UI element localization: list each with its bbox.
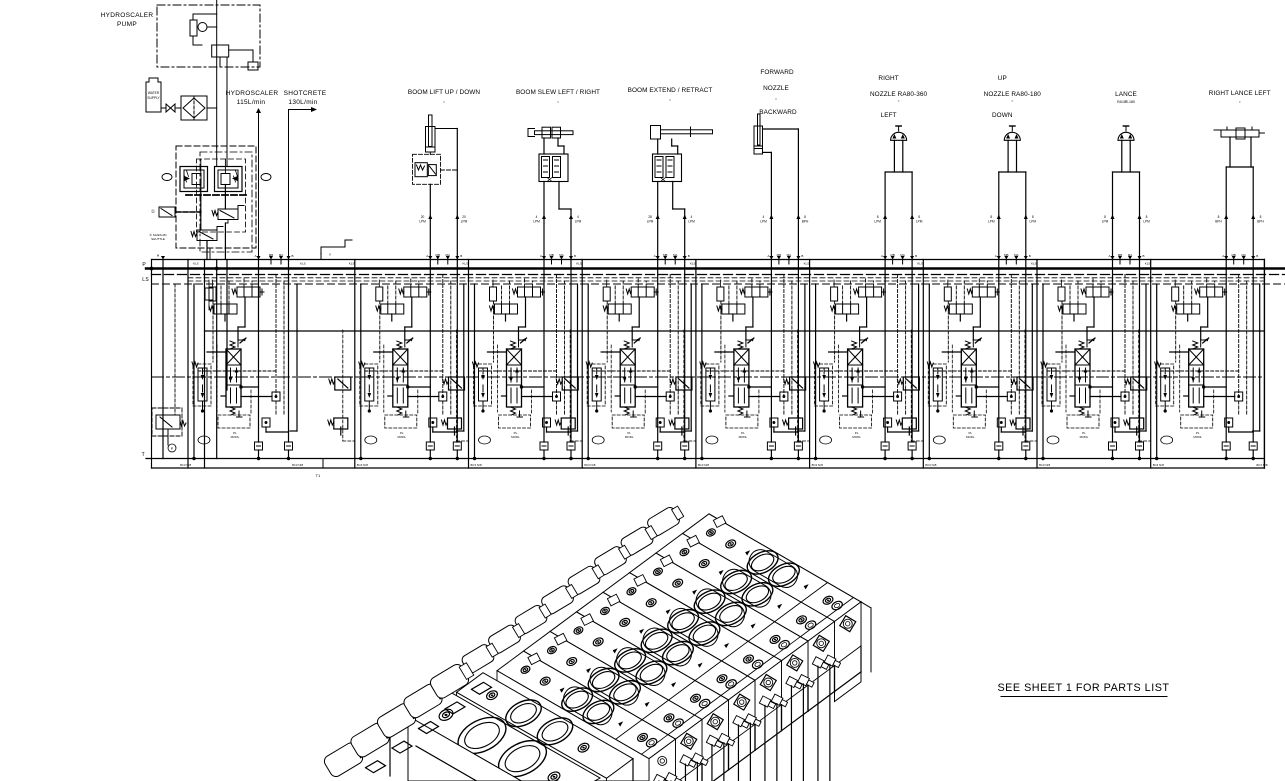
svg-text:8C3 Nr8: 8C3 Nr8	[812, 463, 824, 467]
svg-text:B: B	[460, 254, 462, 258]
svg-text:8C3 Nr8: 8C3 Nr8	[471, 463, 483, 467]
svg-text:20: 20	[462, 215, 466, 219]
svg-text:RIGHT LANCE LEFT: RIGHT LANCE LEFT	[1209, 90, 1271, 97]
svg-text:4: 4	[691, 215, 693, 219]
svg-text:BOOM LIFT UP / DOWN: BOOM LIFT UP / DOWN	[408, 89, 481, 96]
svg-text:4: 4	[577, 215, 579, 219]
svg-text:=: =	[775, 97, 777, 101]
svg-text:MB: MB	[1118, 253, 1123, 257]
svg-text:8: 8	[1218, 215, 1220, 219]
svg-text:SEE SHEET 1 FOR PARTS LIST: SEE SHEET 1 FOR PARTS LIST	[997, 682, 1169, 694]
svg-text:KLS: KLS	[193, 262, 199, 266]
svg-text:KLS: KLS	[1145, 262, 1151, 266]
svg-text:DOWN: DOWN	[992, 112, 1013, 119]
svg-text:8: 8	[918, 215, 920, 219]
svg-text:MA: MA	[900, 253, 905, 257]
svg-text:MB: MB	[777, 253, 782, 257]
svg-text:LPM: LPM	[988, 220, 995, 224]
svg-text:MODL: MODL	[739, 435, 748, 439]
svg-text:P: P	[171, 447, 174, 451]
svg-text:BOOM SLEW LEFT / RIGHT: BOOM SLEW LEFT / RIGHT	[516, 89, 600, 96]
svg-text:LPM: LPM	[1143, 220, 1150, 224]
svg-text:LPM: LPM	[760, 220, 767, 224]
svg-text:MA: MA	[1241, 253, 1246, 257]
svg-text:MA: MA	[1014, 253, 1019, 257]
svg-text:8: 8	[990, 215, 992, 219]
svg-text:MA: MA	[279, 253, 284, 257]
svg-text:KLS: KLS	[690, 262, 696, 266]
svg-text:4: 4	[763, 215, 765, 219]
svg-text:PUMP: PUMP	[117, 21, 137, 28]
svg-text:MB: MB	[1231, 253, 1236, 257]
svg-text:LS: LS	[142, 277, 149, 283]
svg-text:MODL: MODL	[966, 435, 975, 439]
svg-text:B: B	[574, 254, 576, 258]
svg-text:MODL: MODL	[397, 435, 406, 439]
svg-text:8C3 Nr8: 8C3 Nr8	[925, 463, 937, 467]
svg-text:RIGHT: RIGHT	[878, 75, 898, 82]
svg-text:28: 28	[648, 215, 652, 219]
svg-text:8C3 Nr8: 8C3 Nr8	[180, 463, 192, 467]
svg-text:115L/min: 115L/min	[237, 99, 266, 106]
svg-text:SUPPLY: SUPPLY	[147, 96, 160, 100]
svg-text:SHOTCRETE: SHOTCRETE	[284, 90, 327, 97]
svg-text:LPM: LPM	[1102, 220, 1109, 224]
svg-text:130L/min: 130L/min	[288, 99, 317, 106]
svg-text:NOZZLE: NOZZLE	[763, 85, 789, 92]
svg-text:MA: MA	[673, 253, 678, 257]
svg-text:20: 20	[421, 215, 425, 219]
svg-text:=: =	[443, 100, 445, 104]
svg-text:①: ①	[151, 209, 156, 214]
svg-text:MB: MB	[890, 253, 895, 257]
svg-text:A: A	[995, 254, 997, 258]
svg-text:MB: MB	[436, 253, 441, 257]
svg-text:P: P	[142, 262, 146, 268]
svg-text:LPM: LPM	[1030, 220, 1037, 224]
svg-text:LPM: LPM	[533, 220, 540, 224]
svg-text:A: A	[767, 254, 769, 258]
svg-text:8C3 Nr8: 8C3 Nr8	[1256, 463, 1268, 467]
svg-text:8: 8	[1104, 215, 1106, 219]
svg-text:=: =	[898, 99, 900, 103]
svg-text:8C3 Nr8: 8C3 Nr8	[357, 463, 369, 467]
svg-text:4: 4	[536, 215, 538, 219]
svg-text:NOZZLE RA80-180: NOZZLE RA80-180	[984, 91, 1042, 98]
svg-text:BPH: BPH	[1215, 220, 1222, 224]
svg-text:B: B	[1256, 254, 1258, 258]
svg-text:A: A	[654, 254, 656, 258]
svg-text:KLS: KLS	[576, 262, 582, 266]
svg-text:MODL: MODL	[1193, 435, 1202, 439]
svg-text:LANCE: LANCE	[1115, 91, 1137, 98]
svg-text:8: 8	[804, 215, 806, 219]
svg-text:A: A	[426, 254, 428, 258]
svg-text:A: A	[1222, 254, 1224, 258]
svg-text:=: =	[669, 98, 671, 102]
svg-text:KLS: KLS	[1031, 262, 1037, 266]
svg-text:T1: T1	[316, 473, 321, 478]
svg-text:LPM: LPM	[461, 220, 468, 224]
svg-text:SHUTTLE: SHUTTLE	[151, 237, 165, 241]
svg-text:8C3 Nr8: 8C3 Nr8	[698, 463, 710, 467]
svg-text:FORWARD: FORWARD	[760, 69, 794, 76]
svg-text:B: B	[291, 254, 293, 258]
svg-text:B: B	[1029, 254, 1031, 258]
svg-text:=: =	[1011, 99, 1013, 103]
svg-text:=: =	[557, 100, 559, 104]
svg-text:8: 8	[1032, 215, 1034, 219]
svg-text:B: B	[801, 254, 803, 258]
svg-text:8: 8	[1260, 215, 1262, 219]
svg-text:MA: MA	[559, 253, 564, 257]
svg-text:BACKWARD: BACKWARD	[759, 109, 797, 116]
svg-text:WATER: WATER	[148, 91, 160, 95]
svg-text:KLS: KLS	[300, 262, 306, 266]
svg-text:MB: MB	[269, 253, 274, 257]
svg-text:KLS: KLS	[804, 262, 810, 266]
svg-text:A: A	[881, 254, 883, 258]
svg-text:LEFT: LEFT	[881, 112, 897, 119]
svg-text:RA180-180: RA180-180	[1117, 100, 1135, 104]
svg-text:X: X	[329, 253, 331, 257]
svg-text:M: M	[157, 254, 160, 258]
svg-text:8C3 Nr8: 8C3 Nr8	[292, 463, 304, 467]
svg-text:MB: MB	[663, 253, 668, 257]
svg-text:MODL: MODL	[852, 435, 861, 439]
svg-text:LPM: LPM	[419, 220, 426, 224]
svg-text:MODL: MODL	[1080, 435, 1089, 439]
svg-text:8C3 Nr8: 8C3 Nr8	[1039, 463, 1051, 467]
svg-text:LPM: LPM	[874, 220, 881, 224]
svg-text:MB: MB	[549, 253, 554, 257]
svg-text:8: 8	[877, 215, 879, 219]
svg-text:MODL: MODL	[625, 435, 634, 439]
svg-text:LPM: LPM	[575, 220, 582, 224]
svg-text:HYDROSCALER: HYDROSCALER	[101, 12, 154, 19]
svg-text:BPH: BPH	[802, 220, 809, 224]
svg-text:A: A	[254, 254, 256, 258]
svg-text:8C3 Nr8: 8C3 Nr8	[584, 463, 596, 467]
svg-text:T: T	[320, 253, 322, 257]
svg-text:BPH: BPH	[1257, 220, 1264, 224]
svg-text:MODL: MODL	[231, 435, 240, 439]
svg-text:A: A	[1108, 254, 1110, 258]
svg-text:8C3 Nr8: 8C3 Nr8	[1153, 463, 1165, 467]
svg-text:LPM: LPM	[647, 220, 654, 224]
svg-text:LPM: LPM	[688, 220, 695, 224]
svg-text:HYDROSCALER: HYDROSCALER	[226, 90, 279, 97]
svg-text:A: A	[540, 254, 542, 258]
svg-text:8: 8	[1146, 215, 1148, 219]
svg-text:B: B	[1142, 254, 1144, 258]
svg-text:KLS: KLS	[917, 262, 923, 266]
svg-text:B: B	[915, 254, 917, 258]
svg-text:LPM: LPM	[916, 220, 923, 224]
svg-text:B: B	[688, 254, 690, 258]
svg-text:KLS: KLS	[349, 262, 355, 266]
svg-text:BOOM EXTEND / RETRACT: BOOM EXTEND / RETRACT	[628, 87, 713, 94]
svg-text:MA: MA	[787, 253, 792, 257]
svg-text:T: T	[142, 452, 145, 458]
svg-text:=: =	[1239, 100, 1241, 104]
svg-text:MB: MB	[1004, 253, 1009, 257]
svg-text:MA: MA	[446, 253, 451, 257]
svg-text:MA: MA	[1128, 253, 1133, 257]
svg-text:KLS: KLS	[463, 262, 469, 266]
svg-text:NOZZLE RA80-360: NOZZLE RA80-360	[870, 91, 928, 98]
svg-text:UP: UP	[998, 75, 1007, 82]
svg-text:MODL: MODL	[511, 435, 520, 439]
